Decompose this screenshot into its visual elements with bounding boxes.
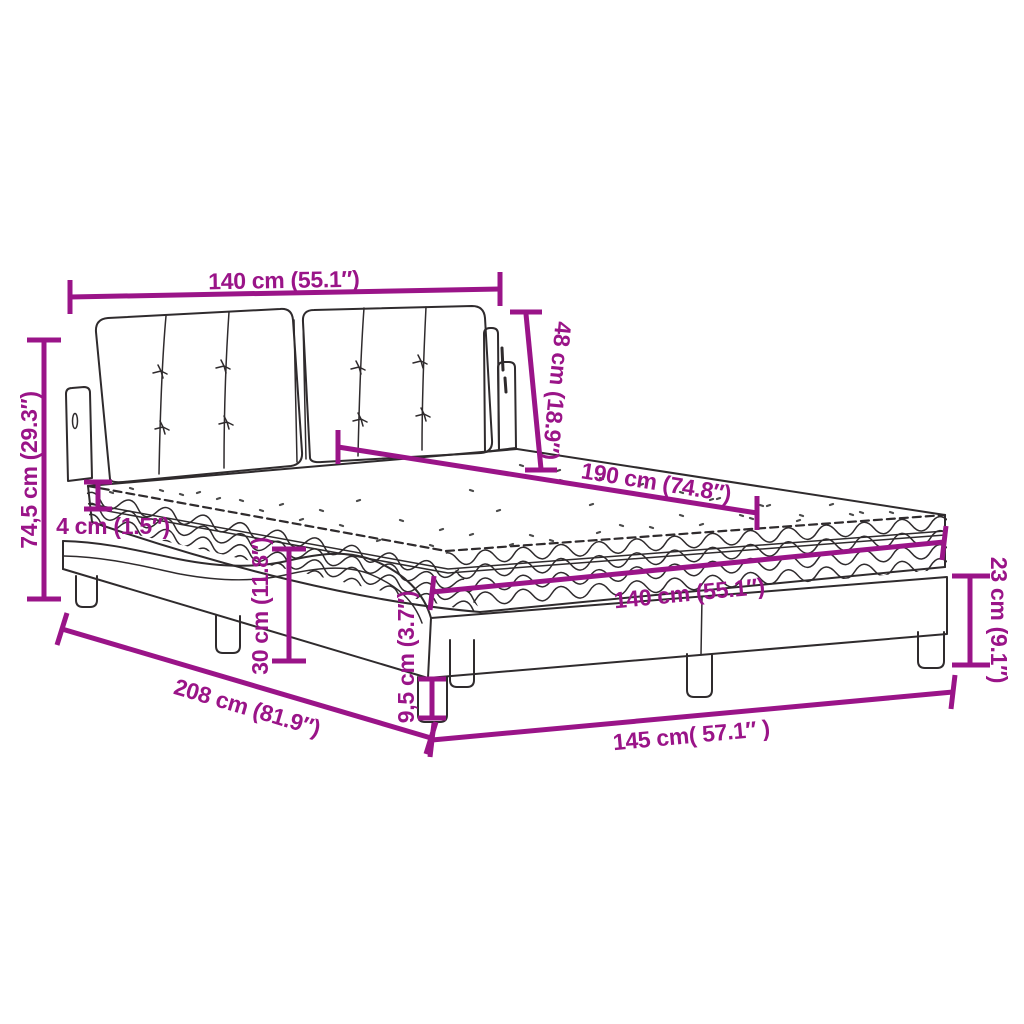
headboard-cushion-right: [303, 306, 492, 462]
bed-leg: [76, 576, 97, 607]
bed-leg: [918, 632, 944, 668]
dimension-headboard-height: 48 cm (18.9″): [510, 312, 577, 470]
mattress-top-speckles: [110, 465, 893, 546]
dimension-annotations: 140 cm (55.1″) 48 cm (18.9″) 190 cm (74.…: [16, 266, 1012, 757]
cushion-left-creases: [159, 312, 229, 474]
wave-line: [438, 513, 988, 566]
bed-leg: [450, 640, 474, 687]
cushion-right-tuft-marks: [351, 355, 430, 426]
headboard-right-post-marks: [502, 348, 506, 392]
wave-line: [81, 524, 624, 647]
dimension-label: 140 cm (55.1″): [208, 266, 360, 295]
headboard-cushion-left: [96, 309, 302, 482]
cushion-left-tuft-marks: [153, 360, 233, 434]
headboard-cushion-gap: [294, 318, 306, 462]
dimension-label: 48 cm (18.9″): [537, 320, 576, 461]
dimension-tick: [951, 675, 955, 709]
dimension-mattress-width: 140 cm (55.1″): [430, 526, 946, 613]
dimension-base-length: 145 cm( 57.1″ ): [430, 675, 955, 757]
bed-leg: [687, 654, 712, 697]
wave-line: [81, 535, 624, 658]
dimension-tick: [430, 576, 434, 610]
dimension-base-height: 23 cm (9.1″): [952, 557, 1012, 683]
dimension-leg-height: 9,5 cm (3.7″): [393, 591, 446, 723]
dimension-overall-height: 74,5 cm (29.3″): [16, 340, 61, 599]
mattress-piping-seam: [90, 504, 945, 573]
cushion-right-creases: [358, 307, 426, 456]
dimension-tick: [430, 723, 434, 757]
dimension-label: 4 cm (1.5″): [56, 513, 170, 539]
dimension-label: 74,5 cm (29.3″): [16, 391, 42, 548]
dimension-label: 9,5 cm (3.7″): [393, 591, 419, 723]
headboard-left-post-knob: [73, 414, 78, 429]
headboard-left-post: [66, 387, 92, 481]
dimension-label: 30 cm (11.8″): [247, 537, 273, 675]
dimension-label: 23 cm (9.1″): [986, 557, 1012, 683]
wave-line: [438, 527, 988, 580]
dimension-label: 140 cm (55.1″): [613, 573, 766, 614]
base-front-seam: [701, 597, 702, 655]
base-bottom-left-edge: [63, 569, 428, 678]
bed-dimension-diagram: 140 cm (55.1″) 48 cm (18.9″) 190 cm (74.…: [0, 0, 1024, 1024]
bed-drawing: [63, 306, 988, 722]
headboard-right-post-outer: [498, 362, 516, 450]
